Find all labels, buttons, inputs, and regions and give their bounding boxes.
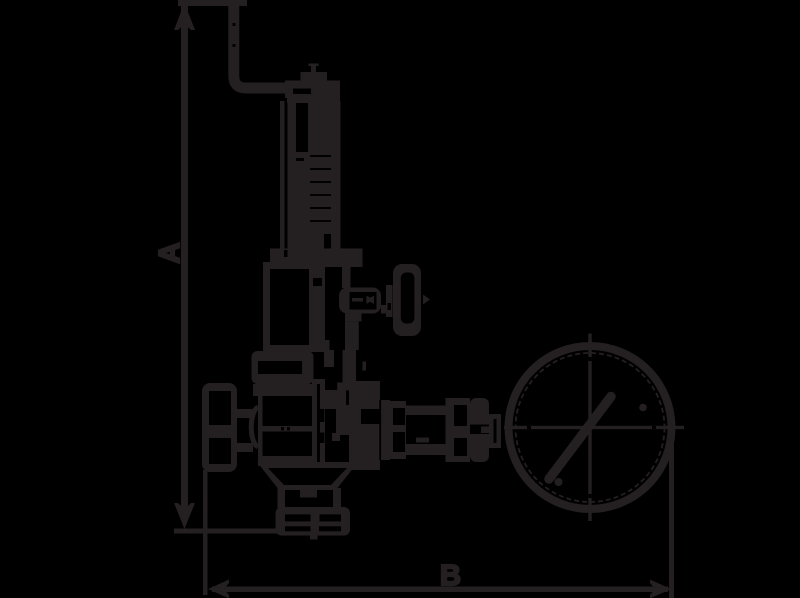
svg-text:B: B [440, 560, 461, 592]
svg-text:A: A [154, 242, 186, 263]
